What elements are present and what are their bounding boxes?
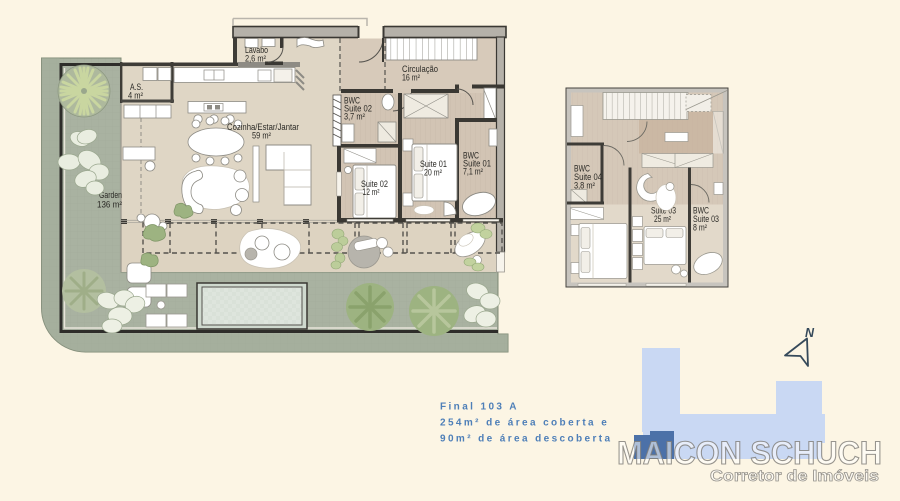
svg-text:20 m²: 20 m² (424, 168, 442, 178)
svg-text:Final 103 A: Final 103 A (440, 402, 519, 413)
svg-text:90m² de área descoberta: 90m² de área descoberta (440, 434, 612, 445)
svg-text:4 m²: 4 m² (128, 91, 143, 101)
svg-text:254m² de área coberta e: 254m² de área coberta e (440, 418, 609, 429)
svg-text:3,7 m²: 3,7 m² (344, 112, 365, 122)
svg-text:2,6 m²: 2,6 m² (245, 54, 266, 64)
svg-text:8 m²: 8 m² (693, 223, 707, 233)
svg-text:7,1 m²: 7,1 m² (463, 167, 483, 177)
svg-text:25 m²: 25 m² (654, 214, 671, 224)
svg-text:12 m²: 12 m² (363, 187, 380, 197)
svg-text:16 m²: 16 m² (402, 73, 420, 83)
svg-text:3,8 m²: 3,8 m² (574, 181, 595, 191)
svg-text:59 m²: 59 m² (252, 131, 271, 141)
svg-text:MAICON SCHUCH: MAICON SCHUCH (617, 435, 882, 471)
svg-text:136 m²: 136 m² (97, 200, 122, 210)
svg-text:Corretor de Imóveis: Corretor de Imóveis (710, 468, 879, 485)
